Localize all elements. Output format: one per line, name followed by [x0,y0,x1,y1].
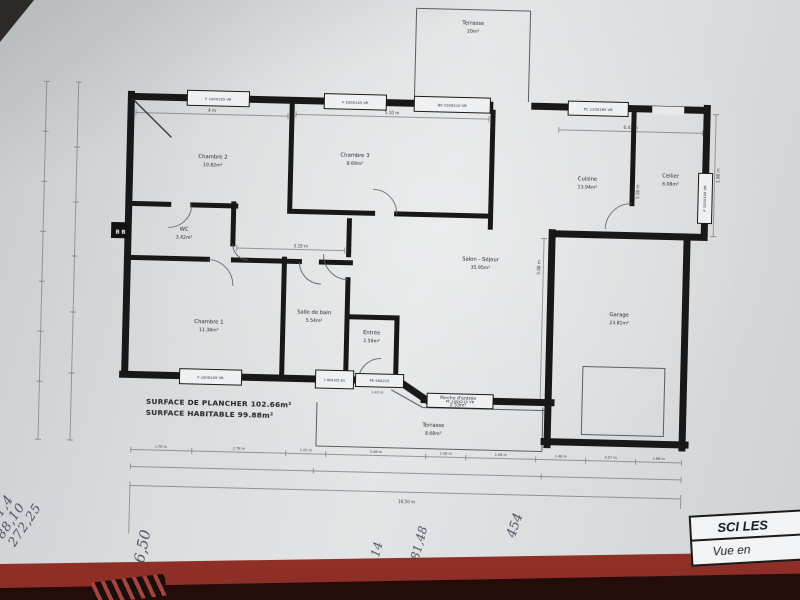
photo-of-floor-plan: 4 m 5.10 m 6.47 m 1.98 m 5.58 m 5.08 m 3… [0,0,800,600]
room-area-garage: 23.81m² [609,320,629,326]
opening-boxes: F 100X105 VR F 100X105 VR BV 220X210 VR … [107,88,714,414]
room-area-terrasse-haut: 20m² [467,29,479,35]
room-name-terrasse-haut: Terrasse [461,20,484,27]
dim-label: 3.08 m [370,450,383,454]
room-name-wc: WC [180,227,189,233]
dim-label: 5.08 m [536,260,541,275]
room-name-sdb: Salle de bain [297,309,331,316]
room-area-chambre2: 10.82m² [203,162,223,168]
dim-label: 5.58 m [635,185,640,200]
exterior-walls [121,94,707,448]
window-label: F 100X105 VR [197,376,224,381]
door-swing-arcs [127,99,635,386]
room-area-cuisine: 13.94m² [578,184,598,190]
room-name-garage: Garage [609,312,629,318]
dim-label: 4 m [208,108,216,113]
room-name-chambre3: Chambre 3 [340,153,369,160]
room-area-cellier: 6.08m² [662,181,679,187]
room-area-sdb: 5.54m² [306,318,323,324]
dim-label: 3.19 m [294,243,309,248]
surface-summary: SURFACE DE PLANCHER 102.66m² SURFACE HAB… [146,397,292,421]
window-label: F 100X105 VR [342,101,369,106]
room-name-entree: Entrée [363,329,381,336]
room-name-terrasse-bas: Terrasse [421,423,444,430]
room-area-terrasse-bas: 8.68m² [425,431,442,437]
dim-label: 1.98 m [715,168,720,183]
room-area-salon: 35.95m² [471,265,491,271]
room-name-cellier: Cellier [662,173,680,179]
dim-label: 1.20 m [300,448,313,452]
room-area-chambre1: 11.38m² [199,327,219,333]
room-name-cuisine: Cuisine [578,176,598,182]
surface-habitable-text: SURFACE HABITABLE 99.88m² [146,408,274,420]
window-label: F 100X105 VR [205,97,232,102]
wall-opening [652,106,684,115]
room-name-chambre1: Chambre 1 [194,319,223,326]
garage-inner-outline [581,366,665,436]
floor-plan-drawing: 4 m 5.10 m 6.47 m 1.98 m 5.58 m 5.08 m 3… [0,0,800,600]
window-label: BV 220X210 VR [438,103,467,108]
dim-label: 1.68 m [652,457,665,461]
section-marker-label: B B [115,230,125,236]
door-label: PE 90X215 [369,379,390,384]
window-label: F 60X105 SG [324,378,345,383]
dim-label: 1.98 m [495,453,508,457]
dim-label: 1.48 m [555,454,568,458]
dim-label: 1.43 m [371,390,384,394]
dim-label: 5.10 m [385,110,400,115]
window-label: F 100X105 VR [703,185,708,212]
dimension-labels: 4 m 5.10 m 6.47 m 1.98 m 5.58 m 5.08 m 3… [153,105,722,512]
title-block: SCI LES Vue en [689,508,800,566]
room-area-porche: 2.53m² [450,402,467,408]
bay-opening [493,102,531,111]
room-name-chambre2: Chambre 2 [198,154,227,161]
dim-label: 1.78 m [155,445,168,449]
dim-label-total: 16.50 m [398,499,415,504]
room-name-salon: Salon - Séjour [462,256,500,264]
dim-label: 2.78 m [233,446,246,450]
room-area-wc: 3.42m² [176,235,193,241]
room-area-entree: 2.59m² [363,338,380,344]
room-area-chambre3: 8.69m² [346,161,363,167]
dim-label: 4.57 m [605,456,618,460]
entry-door-leaf-line [132,99,172,137]
window-label: PC 120X165 VR [584,107,613,112]
dim-label: 1.08 m [440,452,453,456]
